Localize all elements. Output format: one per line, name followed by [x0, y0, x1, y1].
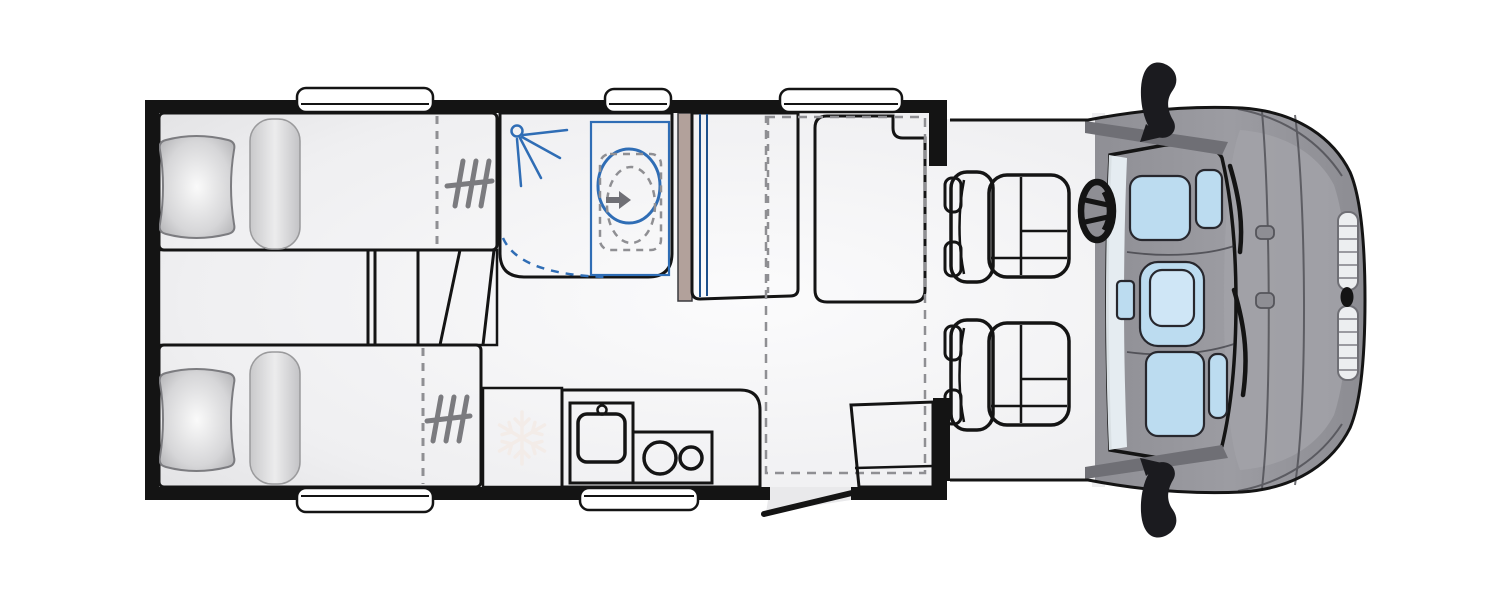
window	[297, 88, 433, 112]
partition-strip	[678, 113, 692, 301]
dash-vent	[1117, 281, 1134, 319]
seat-base-wall	[851, 487, 950, 500]
window	[605, 89, 671, 112]
pillow	[160, 136, 235, 238]
motorhome-floorplan	[0, 0, 1500, 600]
window	[297, 488, 433, 512]
lower-console	[1146, 352, 1204, 436]
brand-badge	[1341, 287, 1354, 307]
instrument-panel	[1130, 176, 1190, 240]
bolster-cushion	[250, 119, 300, 249]
outside-top	[947, 94, 1092, 119]
steering-wheel-icon	[1081, 182, 1113, 240]
hood-highlight	[1224, 130, 1348, 470]
rear-wall	[145, 100, 159, 500]
cab-bulkhead-stub	[929, 100, 947, 166]
floorplan-canvas	[0, 0, 1500, 600]
bolster-cushion	[250, 352, 300, 484]
dash-panel	[1209, 354, 1227, 418]
window	[580, 488, 698, 510]
outside-bottom	[947, 481, 1092, 506]
window	[780, 89, 902, 112]
dash-panel	[1196, 170, 1222, 228]
pillow	[160, 369, 235, 471]
